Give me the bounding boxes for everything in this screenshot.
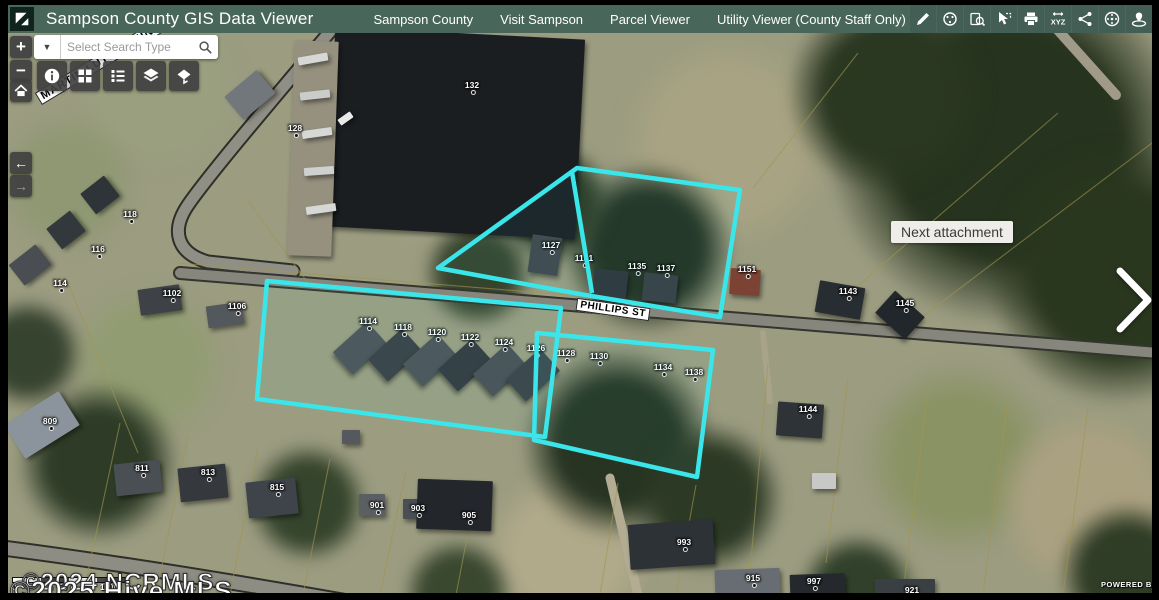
address-point-marker	[905, 309, 908, 312]
parcel-address-label: 118	[123, 209, 137, 219]
zoom-out-button[interactable]: −	[10, 60, 32, 82]
parcel-address-label: 813	[201, 467, 215, 477]
search-button[interactable]	[192, 35, 218, 59]
building	[80, 176, 120, 215]
basemap-icon	[175, 67, 193, 85]
terrain-patch	[863, 363, 1053, 553]
building	[302, 127, 333, 139]
address-point-marker	[50, 427, 53, 430]
terrain-patch	[8, 298, 83, 408]
building	[298, 52, 329, 65]
building	[812, 473, 836, 489]
search-type-dropdown[interactable]: ▼	[34, 35, 61, 59]
toolbar-widget-gallery-button[interactable]	[70, 61, 100, 91]
terrain-patch	[633, 423, 783, 573]
screenshot-frame: Sampson County GIS Data Viewer Sampson C…	[0, 0, 1159, 600]
building	[403, 333, 457, 386]
parcel-address-label: 132	[465, 80, 479, 90]
terrain-patch	[318, 33, 538, 243]
address-point-marker	[418, 514, 421, 517]
roads-layer	[8, 33, 1152, 593]
terrain-patch	[993, 408, 1152, 593]
terrain-patch	[483, 468, 653, 593]
building	[815, 280, 866, 320]
address-point-marker	[470, 343, 473, 346]
highlight-parcel-left	[257, 281, 561, 437]
building	[9, 244, 52, 285]
building	[245, 477, 298, 518]
address-point-marker	[60, 289, 63, 292]
parcel-address-label: 901	[370, 500, 384, 510]
address-point-marker	[295, 134, 298, 137]
terrain-patch	[618, 33, 838, 253]
scale-bar: 0 50 100ft	[12, 577, 126, 593]
basemap-wheel-icon[interactable]	[1098, 5, 1125, 33]
parcel-address-label: 1134	[654, 362, 672, 372]
widget-gallery-icon	[76, 67, 94, 85]
address-point-marker	[753, 584, 756, 587]
scale-100ft: 100ft	[100, 583, 119, 592]
parcel-address-label: 809	[43, 416, 57, 426]
terrain-patch	[563, 163, 733, 333]
app-header: Sampson County GIS Data Viewer Sampson C…	[8, 5, 1152, 33]
address-point-marker	[130, 220, 133, 223]
parcel-address-label: 1102	[163, 288, 181, 298]
app-logo-icon	[10, 7, 34, 31]
address-point-marker	[469, 521, 472, 524]
highlight-layer	[8, 33, 1152, 593]
building	[300, 89, 331, 100]
nav-link-parcel-viewer[interactable]: Parcel Viewer	[610, 12, 690, 27]
next-attachment-tooltip: Next attachment	[891, 221, 1013, 243]
building	[333, 321, 387, 374]
address-point-marker	[142, 474, 145, 477]
toolbar-basemap-button[interactable]	[169, 61, 199, 91]
address-point-marker	[694, 378, 697, 381]
parcel-address-label: 921	[905, 585, 919, 593]
nav-link-sampson-county[interactable]: Sampson County	[373, 12, 473, 27]
parcel-address-label: 1145	[896, 298, 914, 308]
address-point-marker	[172, 299, 175, 302]
parcel-address-label: 1138	[685, 367, 703, 377]
previous-extent-button[interactable]: ←	[10, 152, 32, 174]
building	[875, 579, 935, 593]
address-point-marker	[551, 251, 554, 254]
near-me-icon[interactable]	[1125, 5, 1152, 33]
chevron-right-icon	[1108, 258, 1152, 343]
building	[304, 166, 334, 176]
address-point-marker	[566, 359, 569, 362]
address-point-marker	[377, 511, 380, 514]
address-point-marker	[808, 415, 811, 418]
nav-link-utility-viewer-county-staff-only[interactable]: Utility Viewer (County Staff Only)	[717, 12, 906, 27]
building	[438, 338, 492, 391]
building	[342, 430, 360, 444]
parcel-address-label: 1124	[495, 337, 513, 347]
address-point-marker	[368, 327, 371, 330]
building	[137, 284, 182, 316]
draw-icon[interactable]	[936, 5, 963, 33]
parcel-address-label: 1114	[359, 316, 377, 326]
parcel-address-label: 993	[677, 537, 691, 547]
address-point-marker	[237, 312, 240, 315]
legend-icon	[109, 67, 127, 85]
terrain-patch	[1058, 503, 1152, 593]
address-point-marker	[98, 255, 101, 258]
parcel-address-label: 1106	[228, 301, 246, 311]
widget-toolbar	[37, 61, 199, 91]
toolbar-layer-list-button[interactable]	[136, 61, 166, 91]
building	[528, 234, 563, 276]
building	[368, 328, 422, 381]
page-title: Sampson County GIS Data Viewer	[46, 9, 313, 29]
header-toolbar: XYZ	[909, 5, 1152, 33]
parcel-address-label: 128	[288, 123, 302, 133]
terrain-patch	[493, 143, 613, 263]
building	[506, 348, 560, 401]
parcel-address-label: 1126	[527, 343, 545, 353]
terrain-patch	[798, 533, 918, 593]
building	[113, 460, 162, 497]
highlight-parcel-right	[534, 333, 713, 477]
parcel-address-label: 1135	[628, 261, 646, 271]
watermark-ncrmls: ©2024 NCRMLS	[22, 569, 214, 593]
building	[592, 268, 629, 301]
address-point-marker	[684, 548, 687, 551]
parcel-address-label: 997	[807, 576, 821, 586]
street-label-phillips: PHILLIPS ST	[575, 298, 650, 321]
parcel-address-label: 1137	[657, 263, 675, 273]
building	[306, 203, 337, 215]
coordinates-icon[interactable]: XYZ	[1044, 5, 1071, 33]
toolbar-legend-button[interactable]	[103, 61, 133, 91]
print-icon[interactable]	[1017, 5, 1044, 33]
parcel-address-label: 1118	[394, 322, 412, 332]
building	[359, 494, 385, 516]
terrain-patch	[68, 283, 228, 443]
parcel-address-label: 116	[91, 244, 105, 254]
info-icon	[43, 67, 61, 85]
parcel-address-label: 915	[746, 573, 760, 583]
watermark-hivemls: ©2025 Hive MLS	[10, 576, 233, 593]
toolbar-info-button[interactable]	[37, 61, 67, 91]
svg-text:XYZ: XYZ	[1051, 18, 1066, 27]
highlight-parcel-top	[438, 168, 740, 317]
layer-list-icon	[142, 67, 160, 85]
next-attachment-button[interactable]	[1108, 258, 1152, 343]
map-canvas[interactable]: 1321281181161141102110611141118112011221…	[8, 33, 1152, 593]
share-icon[interactable]	[1071, 5, 1098, 33]
building	[224, 70, 275, 120]
building	[715, 568, 781, 593]
building	[337, 111, 353, 125]
measure-icon[interactable]	[909, 5, 936, 33]
header-nav: Sampson CountyVisit SampsonParcel Viewer…	[373, 12, 905, 27]
nav-link-visit-sampson[interactable]: Visit Sampson	[500, 12, 583, 27]
address-point-marker	[536, 354, 539, 357]
address-point-marker	[584, 264, 587, 267]
building	[416, 479, 493, 532]
building	[628, 519, 716, 570]
parcel-address-label: 114	[53, 278, 67, 288]
building	[729, 268, 761, 296]
address-point-marker	[663, 373, 666, 376]
powered-by-attribution: POWERED BY Esri	[1101, 580, 1152, 589]
terrain-patch	[523, 348, 713, 538]
address-point-marker	[472, 91, 475, 94]
parcel-address-label: 1143	[839, 286, 857, 296]
address-point-marker	[504, 348, 507, 351]
terrain-patch	[403, 538, 513, 593]
building	[287, 40, 338, 256]
address-point-marker	[599, 362, 602, 365]
building	[206, 302, 245, 329]
address-point-marker	[666, 274, 669, 277]
zoom-in-button[interactable]: +	[10, 36, 32, 58]
building	[642, 272, 679, 303]
address-point-marker	[848, 297, 851, 300]
query-icon[interactable]	[963, 5, 990, 33]
address-point-marker	[814, 587, 817, 590]
parcel-address-label: 1130	[590, 351, 608, 361]
address-point-marker	[277, 493, 280, 496]
parcel-address-label: 1122	[461, 332, 479, 342]
parcel-address-label: 1131	[575, 253, 593, 263]
address-point-marker	[208, 478, 211, 481]
parcel-address-label: 815	[270, 482, 284, 492]
home-extent-button[interactable]	[10, 80, 32, 102]
scale-0: 0	[12, 583, 16, 592]
scale-50: 50	[58, 583, 67, 592]
building	[473, 343, 527, 396]
building	[790, 573, 846, 593]
terrain-patch	[788, 33, 988, 193]
building	[325, 33, 585, 239]
parcel-address-label: 905	[462, 510, 476, 520]
terrain-patch	[248, 443, 368, 563]
parcel-address-label: 1144	[799, 404, 817, 414]
terrain-patch	[828, 33, 1152, 323]
building	[403, 499, 427, 519]
building	[776, 401, 824, 438]
search-widget: ▼	[34, 35, 218, 59]
parcel-address-label: 811	[135, 463, 149, 473]
parcel-address-label: 1151	[738, 264, 756, 274]
parcel-address-label: 1128	[557, 348, 575, 358]
address-point-marker	[747, 275, 750, 278]
terrain-patch	[423, 218, 533, 328]
search-icon	[198, 40, 213, 55]
next-extent-button[interactable]: →	[10, 175, 32, 197]
address-point-marker	[403, 333, 406, 336]
parcel-address-label: 1127	[542, 240, 560, 250]
address-point-marker	[637, 272, 640, 275]
building	[8, 391, 80, 459]
building	[875, 290, 925, 339]
parcel-address-label: 903	[411, 503, 425, 513]
building	[177, 464, 228, 503]
search-input[interactable]	[61, 35, 192, 59]
address-point-marker	[437, 338, 440, 341]
building	[46, 211, 86, 250]
terrain-patch	[18, 383, 178, 543]
parcel-address-label: 1120	[428, 327, 446, 337]
select-icon[interactable]	[990, 5, 1017, 33]
